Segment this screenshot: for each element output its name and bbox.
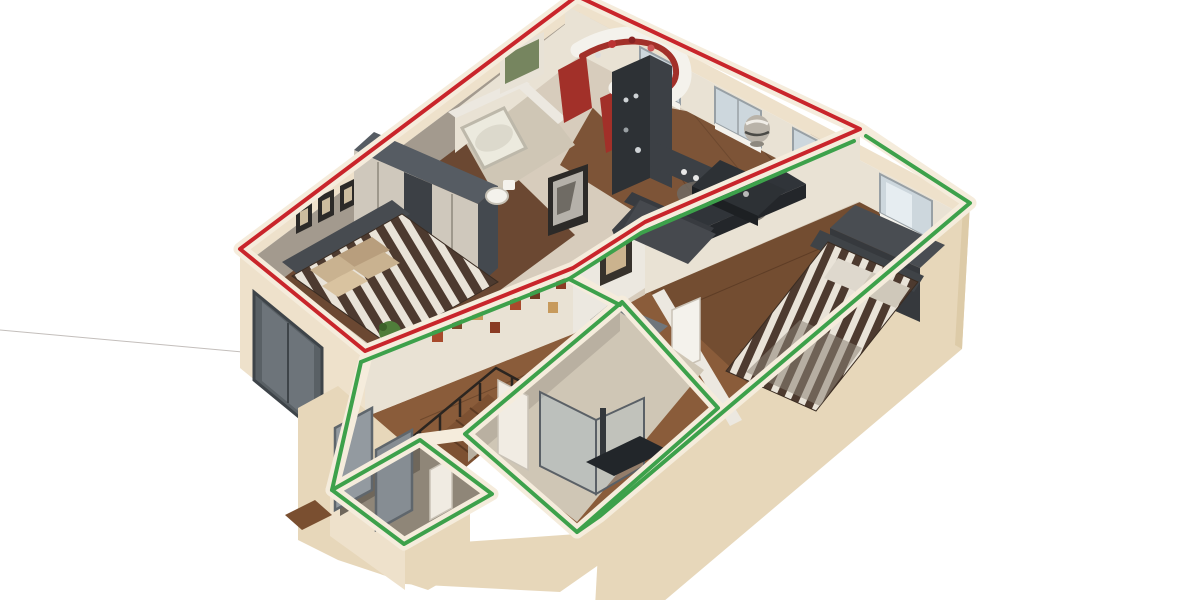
toilet-tank xyxy=(503,180,515,190)
floorplan-svg xyxy=(0,0,1200,600)
toilet xyxy=(486,188,508,204)
floorplan-image xyxy=(0,0,1200,600)
